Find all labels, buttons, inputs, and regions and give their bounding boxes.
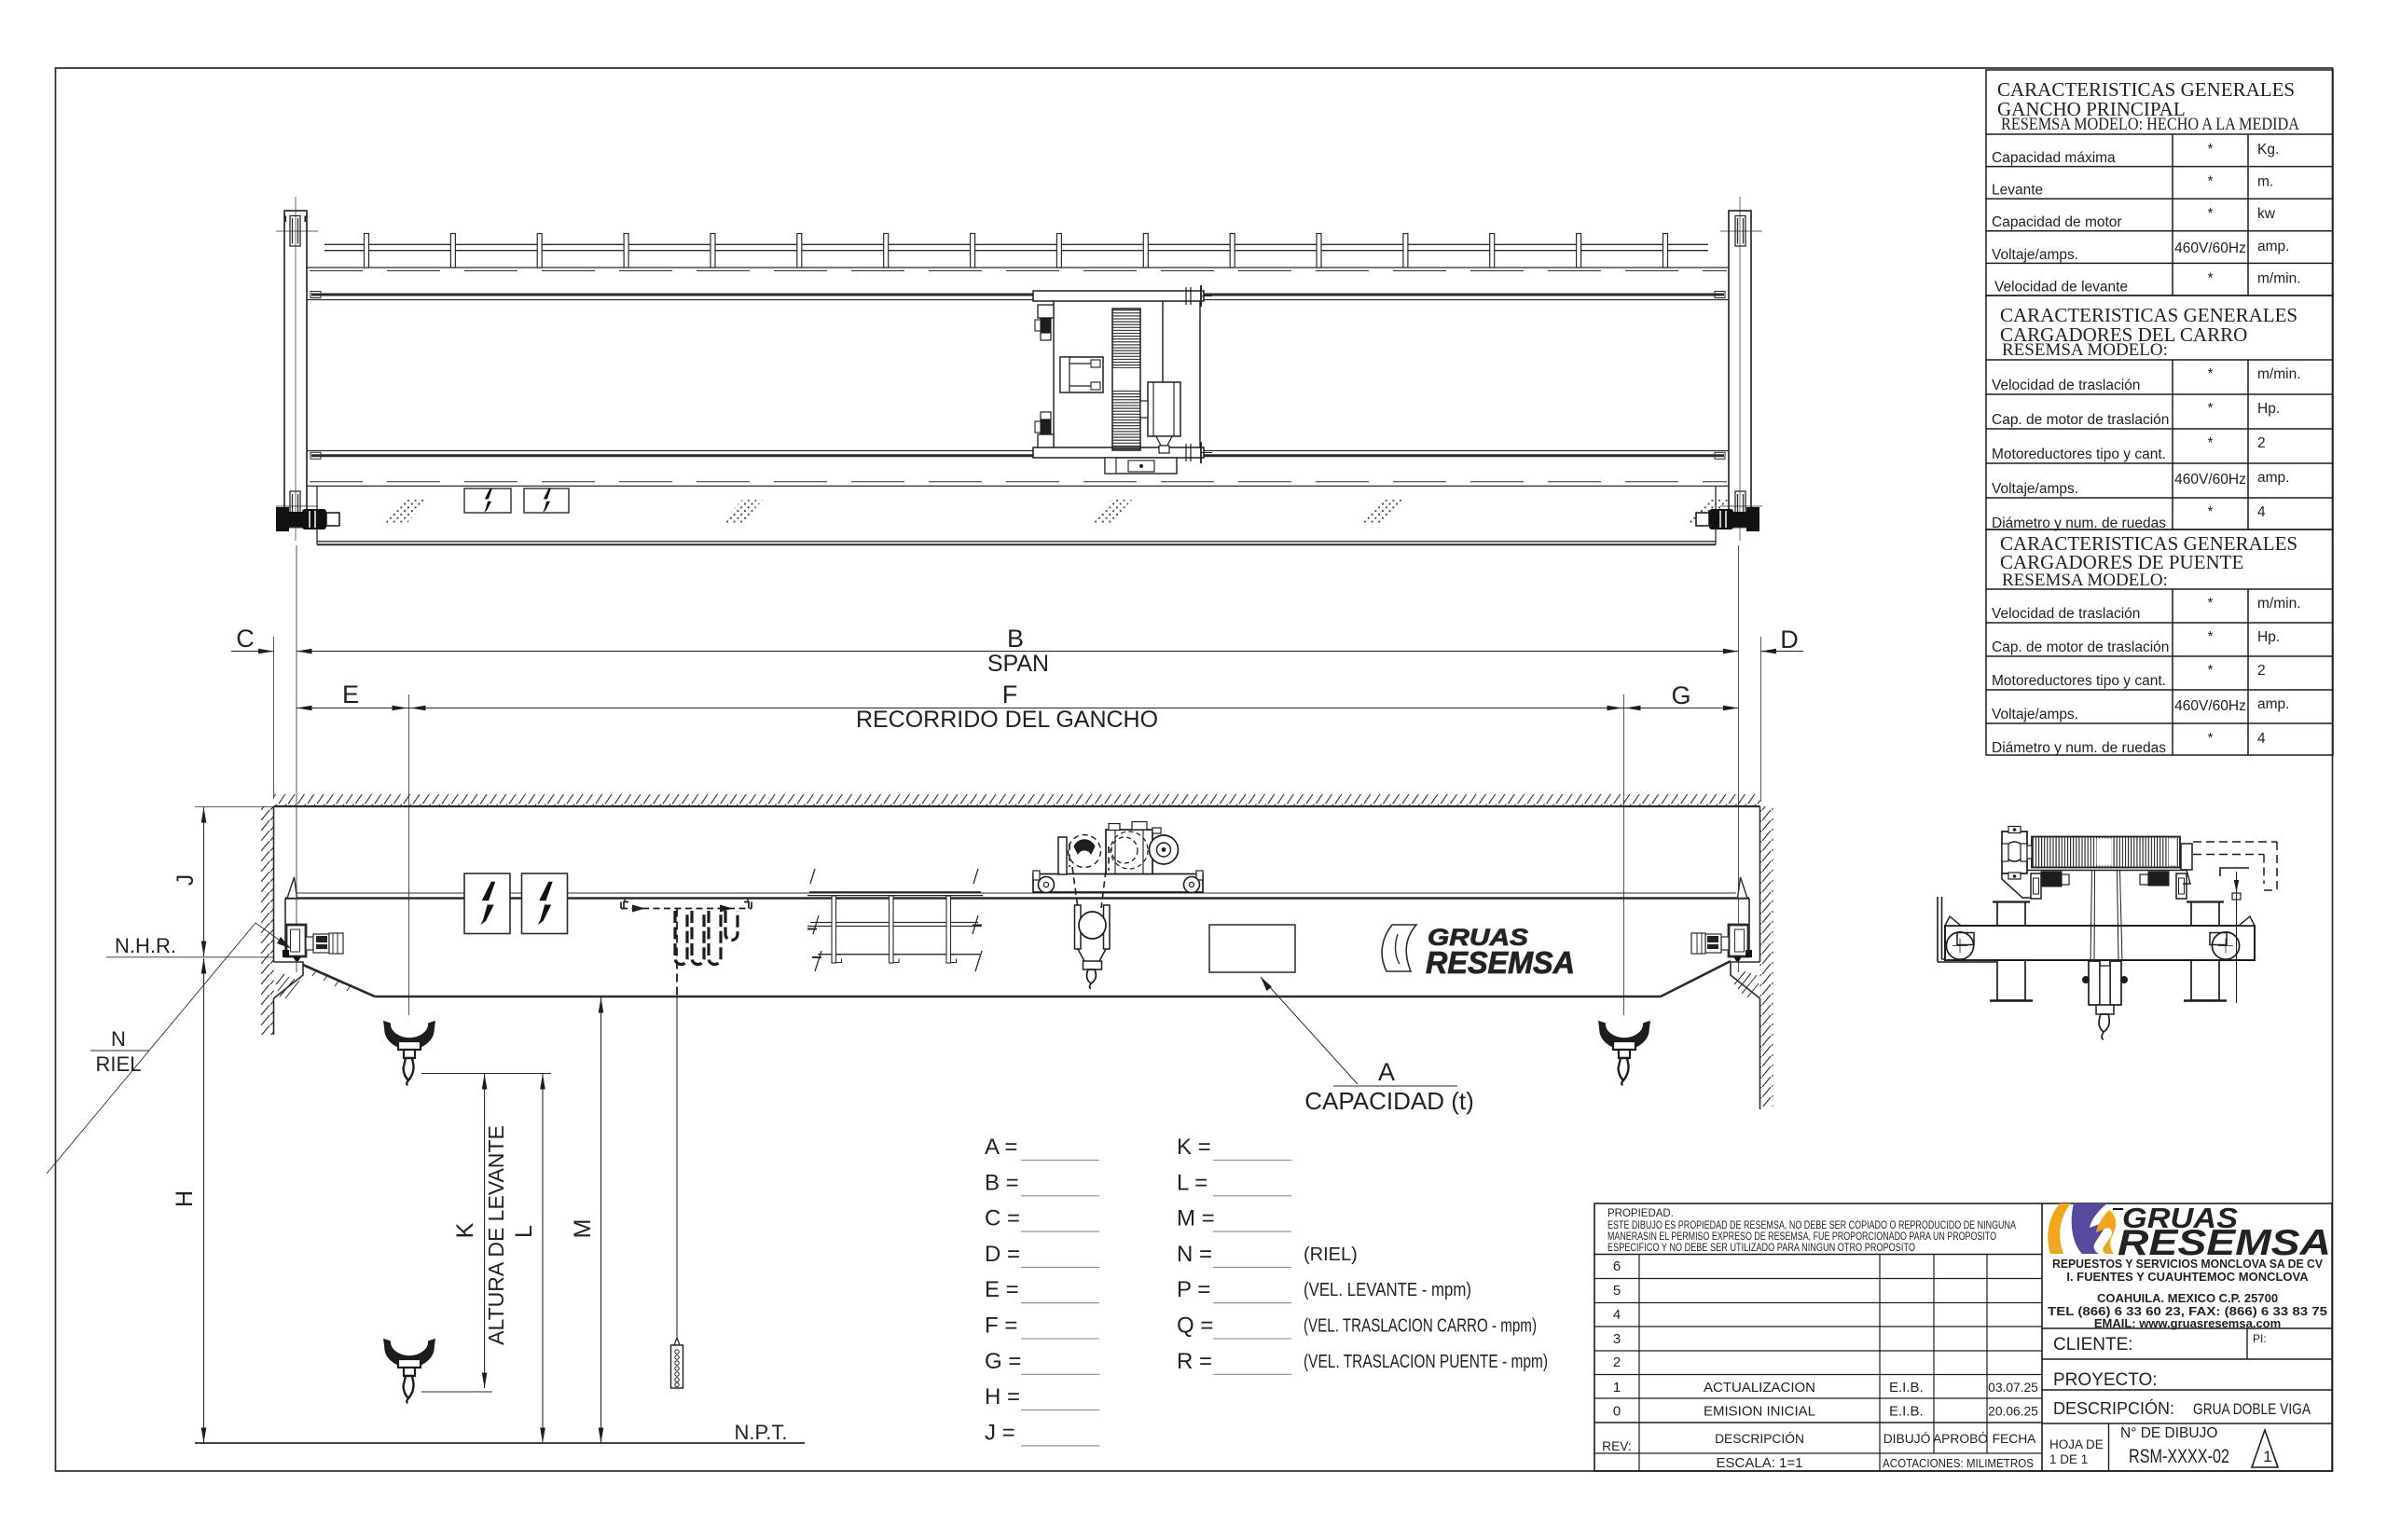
svg-text:B =: B =	[985, 1170, 1019, 1195]
svg-text:RSM-XXXX-02: RSM-XXXX-02	[2129, 1446, 2229, 1467]
svg-text:Velocidad de traslación: Velocidad de traslación	[1992, 378, 2140, 393]
svg-text:Velocidad de traslación: Velocidad de traslación	[1992, 606, 2140, 622]
svg-text:FECHA: FECHA	[1993, 1432, 2037, 1446]
svg-text:COAHUILA. MEXICO C.P. 25700: COAHUILA. MEXICO C.P. 25700	[2097, 1291, 2278, 1305]
svg-text:Voltaje/amps.: Voltaje/amps.	[1992, 481, 2078, 497]
svg-text:MANERASIN EL PERMISO EXPRESO D: MANERASIN EL PERMISO EXPRESO DE RESEMSA,…	[1607, 1231, 1996, 1243]
svg-text:L: L	[511, 1225, 537, 1238]
svg-text:EMISION INICIAL: EMISION INICIAL	[1704, 1404, 1815, 1420]
svg-text:Voltaje/amps.: Voltaje/amps.	[1992, 247, 2078, 263]
svg-text:Voltaje/amps.: Voltaje/amps.	[1992, 707, 2078, 722]
svg-text:2: 2	[1613, 1354, 1621, 1370]
svg-text:460V/60Hz: 460V/60Hz	[2174, 241, 2246, 256]
svg-text:C: C	[236, 625, 255, 653]
svg-text:APROBÓ: APROBÓ	[1933, 1431, 1988, 1446]
svg-text:N.H.R.: N.H.R.	[115, 934, 176, 957]
svg-text:SPAN: SPAN	[987, 651, 1049, 677]
svg-text:*: *	[2207, 174, 2213, 190]
svg-text:*: *	[2207, 401, 2213, 417]
svg-text:I. FUENTES Y CUAUHTEMOC MONCLO: I. FUENTES Y CUAUHTEMOC MONCLOVA	[2066, 1270, 2309, 1284]
svg-text:G: G	[1671, 681, 1690, 709]
svg-text:*: *	[2207, 435, 2213, 451]
svg-text:(RIEL): (RIEL)	[1304, 1244, 1358, 1265]
svg-text:P =: P =	[1177, 1277, 1210, 1302]
svg-text:Cap. de motor de traslació: Cap. de motor de traslación	[1992, 639, 2169, 655]
svg-text:4: 4	[1613, 1307, 1621, 1323]
svg-text:(VEL. TRASLACION CARRO - mpm): (VEL. TRASLACION CARRO - mpm)	[1304, 1316, 1537, 1337]
svg-text:*: *	[2207, 504, 2213, 520]
svg-text:(VEL. TRASLACION PUENTE - mpm): (VEL. TRASLACION PUENTE - mpm)	[1304, 1352, 1548, 1372]
svg-text:F =: F =	[985, 1313, 1017, 1339]
svg-text:PROYECTO:: PROYECTO:	[2053, 1370, 2158, 1390]
svg-text:3: 3	[1613, 1331, 1621, 1347]
svg-text:HOJA DE: HOJA DE	[2049, 1437, 2104, 1451]
svg-text:GRUA DOBLE VIGA: GRUA DOBLE VIGA	[2193, 1401, 2311, 1418]
svg-text:H =: H =	[985, 1384, 1020, 1409]
svg-text:H: H	[172, 1190, 198, 1207]
svg-text:ALTURA DE LEVANTE: ALTURA DE LEVANTE	[484, 1125, 508, 1345]
svg-text:Capacidad máxima: Capacidad máxima	[1992, 150, 2116, 166]
svg-text:DIBUJÓ: DIBUJÓ	[1883, 1431, 1931, 1446]
svg-text:6: 6	[1613, 1258, 1621, 1274]
svg-text:E =: E =	[985, 1277, 1019, 1302]
svg-text:A =: A =	[985, 1134, 1017, 1160]
svg-text:C =: C =	[985, 1206, 1020, 1231]
svg-text:DESCRIPCIÓN:: DESCRIPCIÓN:	[2053, 1398, 2174, 1418]
svg-text:Velocidad de levante: Velocidad de levante	[1994, 279, 2128, 295]
svg-text:J =: J =	[985, 1420, 1015, 1445]
svg-text:ESTE DIBUJO ES PROPIEDAD DE RE: ESTE DIBUJO ES PROPIEDAD DE RESEMSA, NO …	[1607, 1220, 2016, 1231]
svg-text:REPUESTOS Y SERVICIOS MONCLOVA: REPUESTOS Y SERVICIOS MONCLOVA SA DE CV	[2052, 1257, 2323, 1271]
svg-text:Q =: Q =	[1177, 1313, 1213, 1339]
svg-text:0: 0	[1613, 1404, 1621, 1420]
svg-text:K =: K =	[1177, 1134, 1211, 1160]
svg-text:*: *	[2207, 596, 2213, 612]
svg-text:460V/60Hz: 460V/60Hz	[2174, 472, 2246, 488]
svg-text:*: *	[2207, 629, 2213, 645]
svg-text:E.I.B.: E.I.B.	[1889, 1404, 1924, 1420]
svg-text:RESEMSA MODELO: HECHO A LA MED: RESEMSA MODELO: HECHO A LA MEDIDA	[2001, 115, 2299, 134]
svg-text:*: *	[2207, 206, 2213, 222]
svg-text:N =: N =	[1177, 1242, 1212, 1267]
svg-text:kw: kw	[2257, 206, 2276, 222]
svg-text:REV:: REV:	[1602, 1439, 1632, 1453]
svg-text:20.06.25: 20.06.25	[1988, 1405, 2038, 1419]
svg-text:ACTUALIZACION: ACTUALIZACION	[1704, 1380, 1815, 1396]
svg-text:Kg.: Kg.	[2257, 142, 2279, 158]
svg-text:4: 4	[2257, 731, 2266, 747]
svg-text:A: A	[1378, 1058, 1395, 1086]
svg-text:*: *	[2207, 270, 2213, 286]
svg-text:1: 1	[2263, 1448, 2271, 1465]
svg-text:Hp.: Hp.	[2257, 401, 2280, 417]
svg-text:Levante: Levante	[1992, 183, 2043, 199]
svg-text:PROPIEDAD.: PROPIEDAD.	[1607, 1208, 1674, 1219]
svg-text:ESCALA: 1=1: ESCALA: 1=1	[1717, 1455, 1803, 1471]
svg-text:m.: m.	[2257, 174, 2273, 190]
svg-text:amp.: amp.	[2257, 239, 2289, 254]
svg-text:m/min.: m/min.	[2257, 366, 2301, 382]
svg-text:D: D	[1780, 626, 1799, 653]
svg-text:ESPECIFICO Y NO DEBE SER UTILI: ESPECIFICO Y NO DEBE SER UTILIZADO PARA …	[1607, 1243, 1915, 1254]
svg-text:N.P.T.: N.P.T.	[734, 1421, 787, 1444]
svg-text:03.07.25: 03.07.25	[1988, 1381, 2038, 1395]
svg-text:RESEMSA MODELO:: RESEMSA MODELO:	[2002, 571, 2168, 590]
svg-text:(VEL. LEVANTE - mpm): (VEL. LEVANTE - mpm)	[1304, 1280, 1471, 1300]
svg-text:N° DE DIBUJO: N° DE DIBUJO	[2120, 1425, 2217, 1441]
svg-text:RIEL: RIEL	[96, 1052, 142, 1076]
svg-text:460V/60Hz: 460V/60Hz	[2174, 698, 2246, 714]
svg-text:K: K	[452, 1222, 478, 1238]
svg-text:PI:: PI:	[2253, 1332, 2267, 1345]
svg-text:*: *	[2207, 366, 2213, 382]
svg-text:L =: L =	[1177, 1170, 1207, 1195]
svg-text:*: *	[2207, 731, 2213, 747]
svg-text:RESEMSA MODELO:: RESEMSA MODELO:	[2002, 340, 2168, 360]
svg-text:amp.: amp.	[2257, 470, 2289, 486]
svg-text:E: E	[342, 681, 359, 708]
svg-text:N: N	[111, 1027, 126, 1051]
svg-text:D =: D =	[985, 1242, 1020, 1267]
svg-text:1: 1	[1613, 1380, 1621, 1396]
svg-text:Capacidad de motor: Capacidad de motor	[1992, 214, 2122, 230]
svg-text:CLIENTE:: CLIENTE:	[2053, 1335, 2133, 1354]
svg-text:G =: G =	[985, 1349, 1021, 1374]
svg-text:RECORRIDO DEL GANCHO: RECORRIDO DEL GANCHO	[856, 707, 1158, 733]
svg-text:Motoreductores tipo y cant.: Motoreductores tipo y cant.	[1992, 447, 2166, 462]
svg-text:Hp.: Hp.	[2257, 629, 2280, 645]
svg-text:2: 2	[2257, 663, 2266, 679]
svg-text:m/min.: m/min.	[2257, 270, 2301, 286]
svg-text:Motoreductores tipo y cant.: Motoreductores tipo y cant.	[1992, 673, 2166, 689]
svg-text:J: J	[172, 874, 199, 887]
svg-text:*: *	[2207, 663, 2213, 679]
svg-text:m/min.: m/min.	[2257, 596, 2301, 612]
svg-text:F: F	[1002, 681, 1018, 708]
svg-text:1 DE 1: 1 DE 1	[2049, 1452, 2088, 1466]
svg-text:*: *	[2207, 142, 2213, 158]
svg-text:CAPACIDAD (t): CAPACIDAD (t)	[1304, 1087, 1474, 1115]
svg-text:4: 4	[2257, 504, 2266, 520]
svg-text:RESEMSA: RESEMSA	[1426, 945, 1575, 980]
svg-text:ACOTACIONES: MILIMETROS: ACOTACIONES: MILIMETROS	[1883, 1456, 2034, 1470]
svg-text:Cap. de motor de traslació: Cap. de motor de traslación	[1992, 412, 2169, 428]
svg-text:2: 2	[2257, 435, 2266, 451]
svg-text:M: M	[570, 1219, 596, 1239]
svg-text:R =: R =	[1177, 1349, 1212, 1374]
svg-text:DESCRIPCIÓN: DESCRIPCIÓN	[1715, 1431, 1804, 1446]
svg-text:B: B	[1007, 625, 1024, 653]
svg-text:M =: M =	[1177, 1206, 1215, 1231]
svg-text:E.I.B.: E.I.B.	[1889, 1380, 1924, 1396]
svg-text:amp.: amp.	[2257, 696, 2289, 712]
svg-text:5: 5	[1613, 1283, 1621, 1299]
svg-text:Diámetro y num. de ruedas: Diámetro y num. de ruedas	[1992, 740, 2166, 756]
